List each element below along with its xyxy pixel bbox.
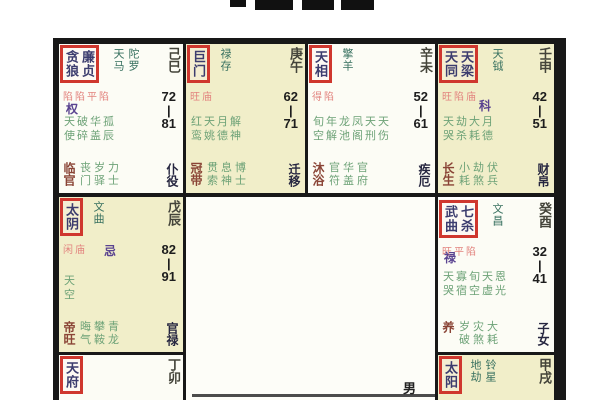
life-stage: 帝旺 [63,321,75,345]
main-star-box: 武曲 七杀 [439,200,478,238]
age-end: 71 [284,117,298,131]
minor-stars-line2: 哭杀耗德 [443,130,495,144]
main-star: 贪狼 [65,50,78,78]
transformation-marker: 权 [66,100,78,117]
age-end: 51 [533,117,547,131]
age-separator: | [284,104,298,118]
age-end: 91 [162,270,176,284]
main-star-box: 巨门 [187,45,210,83]
palace-name: 财帛 [537,163,549,187]
life-stage: 长生 [442,162,454,186]
brightness-label: 旺庙 [190,88,214,103]
minor-stars: 红天月解 鸾姚德神 [191,116,243,144]
main-star: 天梁 [460,50,473,78]
side-stars: 文曲 [92,201,103,225]
year-gods-line1: 丧岁力 [80,162,122,175]
minor-stars: 天破华孤 使碎盖辰 [64,116,116,144]
age-range: 82 | 91 [162,243,176,284]
cycle-gods-row: 帝旺 晦攀青 气鞍龙 [63,321,122,347]
age-range: 32 | 41 [533,245,547,286]
cycle-gods-row: 养 岁灾大 破煞耗 [442,321,501,347]
brightness-label: 旺陷庙 [442,88,478,103]
age-range: 42 | 51 [533,90,547,131]
main-star-box: 天府 [60,356,83,394]
stem-branch: 癸酉 [538,202,551,228]
age-separator: | [533,104,547,118]
age-range: 52 | 61 [414,90,428,131]
side-stars: 擎羊 [341,48,352,72]
year-gods-line2: 耗煞兵 [459,175,501,188]
year-gods-line2: 符盖府 [329,175,371,188]
grid-line-vertical-2 [305,44,308,196]
year-gods: 官华官 符盖府 [329,162,371,188]
stem-branch: 丁卯 [167,358,180,384]
title-glyph-remnant [302,0,334,10]
title-glyph-remnant [255,0,293,10]
brightness-label: 得陷 [312,88,336,103]
ziwei-chart-screenshot: 贪狼 廉贞 天马 陀罗 陷陷平陷 权 72 | 81 天破华孤 使碎盖辰 临官 … [0,0,600,400]
minor-stars-line1: 天劫大月 [443,116,495,130]
side-stars: 天钺 [491,48,502,72]
age-end: 61 [414,117,428,131]
year-gods: 岁灾大 破煞耗 [459,321,501,347]
grid-line-vertical-1 [183,44,186,400]
age-start: 72 [162,90,176,104]
main-star: 天同 [444,50,457,78]
year-gods-line1: 贯息博 [207,162,249,175]
cycle-gods-row: 临官 丧岁力 门驿士 [63,162,122,188]
palace-cell-shen: 天同 天梁 天钺 旺陷庙 科 42 | 51 天劫大月 哭杀耗德 长生 小劫伏 … [438,44,554,193]
gender-label: 男 [403,378,416,397]
side-stars: 禄存 [219,48,230,72]
stem-branch: 甲戌 [538,358,551,384]
year-gods: 小劫伏 耗煞兵 [459,162,501,188]
side-star: 文曲 [92,201,103,225]
minor-stars-line2: 空解池阁刑伤 [313,130,391,144]
palace-cell-mao: 天府 庙 丁卯 [59,355,183,400]
stem-branch: 庚午 [289,47,302,73]
side-stars: 地劫 铃星 [469,359,495,383]
life-stage: 养 [442,321,454,333]
palace-cell-si: 贪狼 廉贞 天马 陀罗 陷陷平陷 权 72 | 81 天破华孤 使碎盖辰 临官 … [59,44,183,193]
year-gods: 晦攀青 气鞍龙 [80,321,122,347]
age-separator: | [162,104,176,118]
side-star: 文昌 [491,203,502,227]
year-gods: 贯息博 索神士 [207,162,249,188]
year-gods: 丧岁力 门驿士 [80,162,122,188]
year-gods-line2: 门驿士 [80,175,122,188]
grid-line-horizontal-2-left [55,352,186,355]
year-gods-line2: 气鞍龙 [80,334,122,347]
year-gods-line1: 官华官 [329,162,371,175]
main-star-box: 太阴 [60,198,83,236]
stem-branch: 戊辰 [167,200,180,226]
side-stars: 文昌 [491,203,502,227]
year-gods-line1: 晦攀青 [80,321,122,334]
stem-branch: 壬申 [538,47,551,73]
minor-stars: 天寡旬天恩 哭宿空虚光 [443,271,508,299]
side-star: 天马 [112,48,123,72]
stem-branch: 己巳 [167,47,180,73]
cycle-gods-row: 冠带 贯息博 索神士 [190,162,249,188]
transformation-marker: 科 [479,97,491,114]
main-star: 武曲 [444,205,457,233]
year-gods-line1: 小劫伏 [459,162,501,175]
year-gods-line1: 岁灾大 [459,321,501,334]
main-star: 太阳 [444,361,457,389]
minor-stars-line2: 使碎盖辰 [64,130,116,144]
main-star: 太阴 [65,203,78,231]
palace-cell-xu: 太阳 地劫 铃星 陷庙 甲戌 [438,355,554,400]
side-stars: 天马 陀罗 [112,48,138,72]
main-star-box: 天同 天梁 [439,45,478,83]
age-separator: | [414,104,428,118]
age-range: 72 | 81 [162,90,176,131]
age-start: 42 [533,90,547,104]
minor-stars: 天劫大月 哭杀耗德 [443,116,495,144]
grid-line-vertical-3 [435,44,438,400]
palace-name: 疾厄 [418,163,430,187]
life-stage: 沐浴 [312,162,324,186]
life-stage: 冠带 [190,162,202,186]
minor-stars-line2: 哭宿空虚光 [443,285,508,299]
main-star-box: 太阳 [439,356,462,394]
year-gods-line2: 索神士 [207,175,249,188]
main-star: 巨门 [192,50,205,78]
side-star: 天钺 [491,48,502,72]
age-start: 32 [533,245,547,259]
grid-line-horizontal-2-right [435,352,556,355]
main-star: 廉贞 [81,50,94,78]
main-star: 七杀 [460,205,473,233]
side-star: 擎羊 [341,48,352,72]
chart-border-right [554,38,566,400]
palace-name: 迁移 [288,163,300,187]
main-star: 天府 [65,361,78,389]
minor-stars: 天 空 [64,275,77,303]
palace-cell-wu: 巨门 禄存 旺庙 62 | 71 红天月解 鸾姚德神 冠带 贯息博 索神士 迁移… [186,44,305,193]
side-star: 地劫 [469,359,480,383]
transformation-marker: 忌 [104,242,116,259]
age-start: 82 [162,243,176,257]
title-glyph-remnant [341,0,374,10]
minor-stars-line2: 空 [64,289,77,303]
cycle-gods-row: 沐浴 官华官 符盖府 [312,162,371,188]
chart-border-left [53,38,59,400]
main-star-box: 贪狼 廉贞 [60,45,99,83]
age-separator: | [533,259,547,273]
stem-branch: 辛未 [419,47,432,73]
age-start: 62 [284,90,298,104]
age-range: 62 | 71 [284,90,298,131]
palace-cell-wei: 天相 擎羊 得陷 52 | 61 旬年龙凤天天 空解池阁刑伤 沐浴 官华官 符盖… [308,44,435,193]
side-star: 禄存 [219,48,230,72]
cycle-gods-row: 长生 小劫伏 耗煞兵 [442,162,501,188]
transformation-marker: 禄 [444,249,456,266]
minor-stars-line1: 天 [64,275,77,289]
minor-stars-line1: 红天月解 [191,116,243,130]
life-stage: 临官 [63,162,75,186]
minor-stars-line1: 旬年龙凤天天 [313,116,391,130]
brightness-label: 闲庙 [63,241,87,256]
minor-stars-line2: 鸾姚德神 [191,130,243,144]
palace-name: 仆役 [166,163,178,187]
age-start: 52 [414,90,428,104]
palace-cell-chen: 太阴 文曲 闲庙 忌 82 | 91 天 空 帝旺 晦攀青 气鞍龙 官禄 戊辰 [59,197,183,352]
title-glyph-remnant [230,0,246,7]
palace-name: 子女 [537,322,549,346]
minor-stars-line1: 天破华孤 [64,116,116,130]
side-star: 陀罗 [127,48,138,72]
main-star: 天相 [314,50,327,78]
age-end: 41 [533,272,547,286]
grid-line-horizontal-1 [55,193,558,197]
main-star-box: 天相 [309,45,332,83]
minor-stars: 旬年龙凤天天 空解池阁刑伤 [313,116,391,144]
side-star: 铃星 [484,359,495,383]
age-end: 81 [162,117,176,131]
minor-stars-line1: 天寡旬天恩 [443,271,508,285]
year-gods-line2: 破煞耗 [459,334,501,347]
palace-cell-you: 武曲 七杀 文昌 旺平陷 禄 32 | 41 天寡旬天恩 哭宿空虚光 养 岁灾大… [438,199,554,352]
palace-name: 官禄 [166,322,178,346]
center-info-panel: 男 [186,197,435,400]
age-separator: | [162,257,176,271]
chart-border-top [53,38,566,44]
